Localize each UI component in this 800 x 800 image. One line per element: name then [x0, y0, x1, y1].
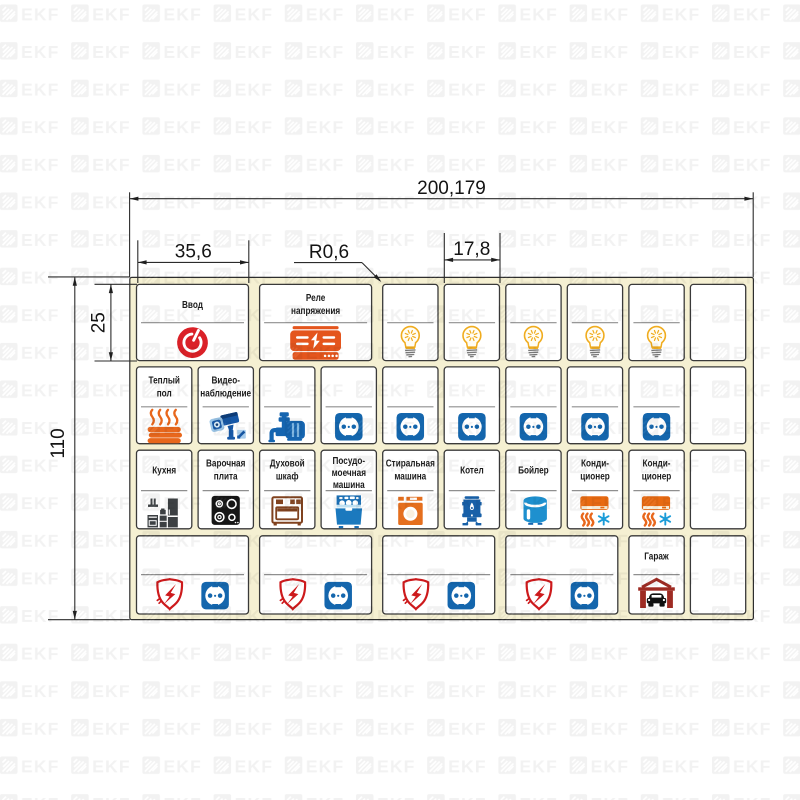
svg-text:17,8: 17,8	[453, 239, 490, 260]
svg-text:25: 25	[89, 312, 110, 333]
svg-text:35,6: 35,6	[175, 242, 212, 263]
svg-text:200,179: 200,179	[417, 178, 486, 199]
svg-text:110: 110	[48, 428, 69, 458]
svg-text:R0,6: R0,6	[309, 242, 349, 263]
